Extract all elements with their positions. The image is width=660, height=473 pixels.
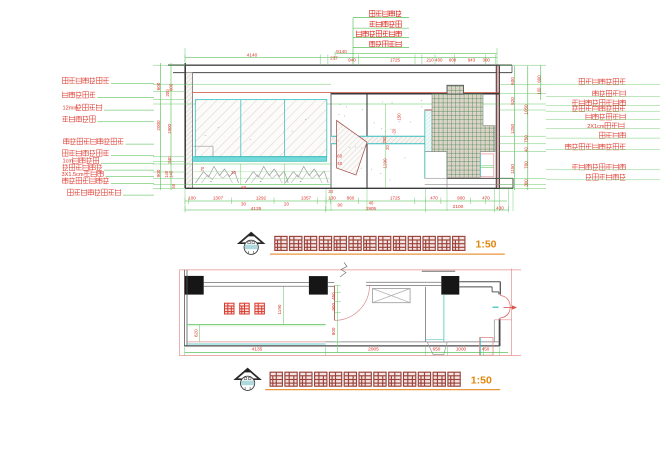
svg-text:800: 800	[331, 327, 336, 335]
svg-text:470: 470	[430, 196, 438, 201]
svg-text:4135: 4135	[252, 347, 263, 353]
svg-text:50: 50	[171, 183, 176, 188]
svg-text:943: 943	[468, 58, 476, 63]
svg-text:2100: 2100	[453, 204, 464, 210]
svg-text:100: 100	[188, 196, 196, 201]
svg-text:300: 300	[483, 58, 491, 63]
svg-text:240: 240	[167, 156, 172, 164]
svg-text:40: 40	[369, 200, 374, 205]
svg-text:600: 600	[536, 75, 541, 83]
svg-text:60: 60	[337, 153, 342, 158]
svg-text:2X1cm: 2X1cm	[587, 124, 605, 130]
svg-text:20: 20	[284, 202, 289, 207]
svg-text:210: 210	[426, 58, 434, 63]
svg-text:1725: 1725	[390, 58, 401, 63]
svg-text:470: 470	[482, 196, 490, 201]
svg-text:1150: 1150	[510, 164, 515, 174]
svg-text:1725: 1725	[390, 196, 401, 201]
svg-text:90: 90	[338, 203, 343, 208]
svg-text:40: 40	[523, 147, 528, 152]
svg-text:70: 70	[200, 166, 205, 171]
svg-text:1190: 1190	[277, 304, 282, 314]
svg-text:2905: 2905	[366, 206, 377, 211]
svg-text:600: 600	[449, 58, 457, 63]
svg-text:620: 620	[194, 329, 199, 337]
svg-text:2000: 2000	[156, 120, 161, 131]
svg-text:4135: 4135	[251, 206, 262, 212]
svg-text:300: 300	[523, 179, 528, 187]
svg-text:1:50: 1:50	[475, 239, 496, 251]
svg-text:600: 600	[169, 83, 174, 91]
svg-text:1:50: 1:50	[471, 374, 492, 386]
svg-text:600: 600	[510, 77, 515, 85]
svg-text:100: 100	[536, 87, 541, 95]
svg-text:20: 20	[385, 145, 390, 150]
svg-text:200: 200	[382, 136, 387, 144]
svg-text:1000: 1000	[456, 347, 467, 352]
svg-text:450: 450	[482, 347, 490, 352]
svg-text:1cm: 1cm	[63, 159, 74, 165]
svg-text:30: 30	[241, 202, 246, 207]
svg-text:150: 150	[397, 113, 402, 121]
svg-text:145: 145	[169, 170, 174, 178]
svg-text:1900: 1900	[167, 123, 172, 134]
svg-text:4140: 4140	[247, 53, 258, 59]
svg-text:650: 650	[433, 347, 441, 352]
svg-text:1307: 1307	[213, 196, 224, 201]
svg-text:430: 430	[496, 205, 504, 210]
svg-text:1290: 1290	[382, 158, 387, 169]
svg-text:20: 20	[392, 128, 397, 133]
svg-text:900: 900	[156, 169, 161, 177]
svg-text:900: 900	[457, 196, 465, 201]
svg-text:900: 900	[331, 303, 336, 311]
svg-text:750: 750	[523, 135, 528, 143]
svg-text:450: 450	[331, 292, 336, 300]
svg-text:1250: 1250	[510, 123, 515, 134]
svg-text:60: 60	[241, 185, 246, 190]
svg-text:1357: 1357	[301, 196, 312, 201]
svg-text:9140: 9140	[336, 49, 347, 55]
svg-text:3X1.5cm: 3X1.5cm	[62, 172, 84, 178]
svg-text:1292: 1292	[256, 196, 267, 201]
svg-text:2905: 2905	[368, 347, 379, 353]
svg-text:237: 237	[330, 55, 338, 60]
svg-text:600: 600	[156, 82, 161, 90]
svg-text:40: 40	[337, 161, 342, 166]
svg-text:860: 860	[347, 196, 355, 201]
svg-text:1050: 1050	[523, 104, 528, 115]
svg-text:130: 130	[328, 196, 336, 201]
svg-text:400: 400	[435, 58, 443, 63]
svg-text:820: 820	[510, 97, 515, 105]
svg-text:700: 700	[523, 161, 528, 169]
svg-text:20: 20	[231, 170, 236, 175]
svg-text:940: 940	[348, 58, 356, 63]
